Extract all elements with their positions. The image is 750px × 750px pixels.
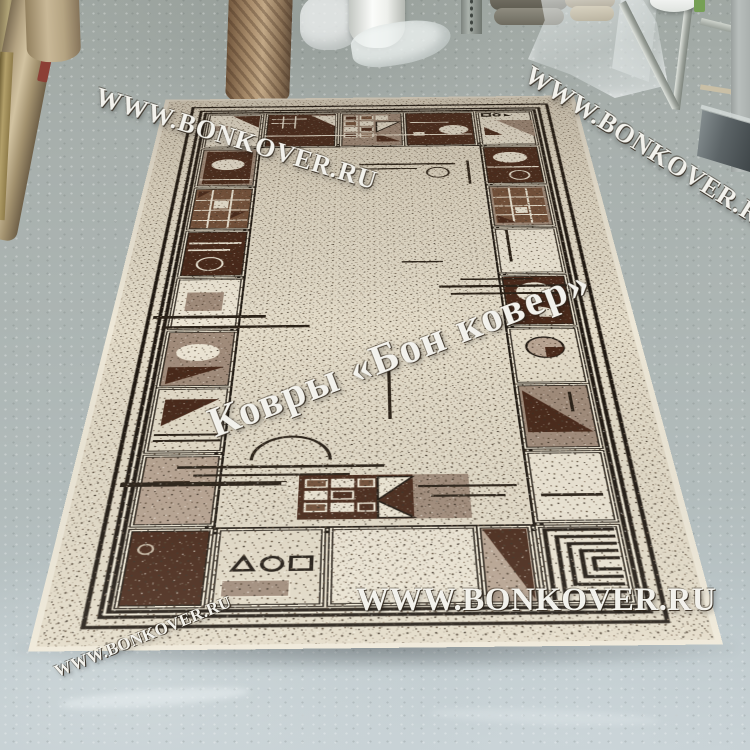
perforated-metal-post <box>461 0 482 34</box>
green-tape-strip <box>694 0 705 12</box>
patterned-carpet-roll <box>225 0 293 107</box>
watermark-bottom: WWW.BONKOVER.RU <box>356 584 716 617</box>
photo-stage: WWW.BONKOVER.RU WWW.BONKOVER.RU Ковры «Б… <box>0 0 750 750</box>
standing-carpet-roll <box>25 0 81 63</box>
